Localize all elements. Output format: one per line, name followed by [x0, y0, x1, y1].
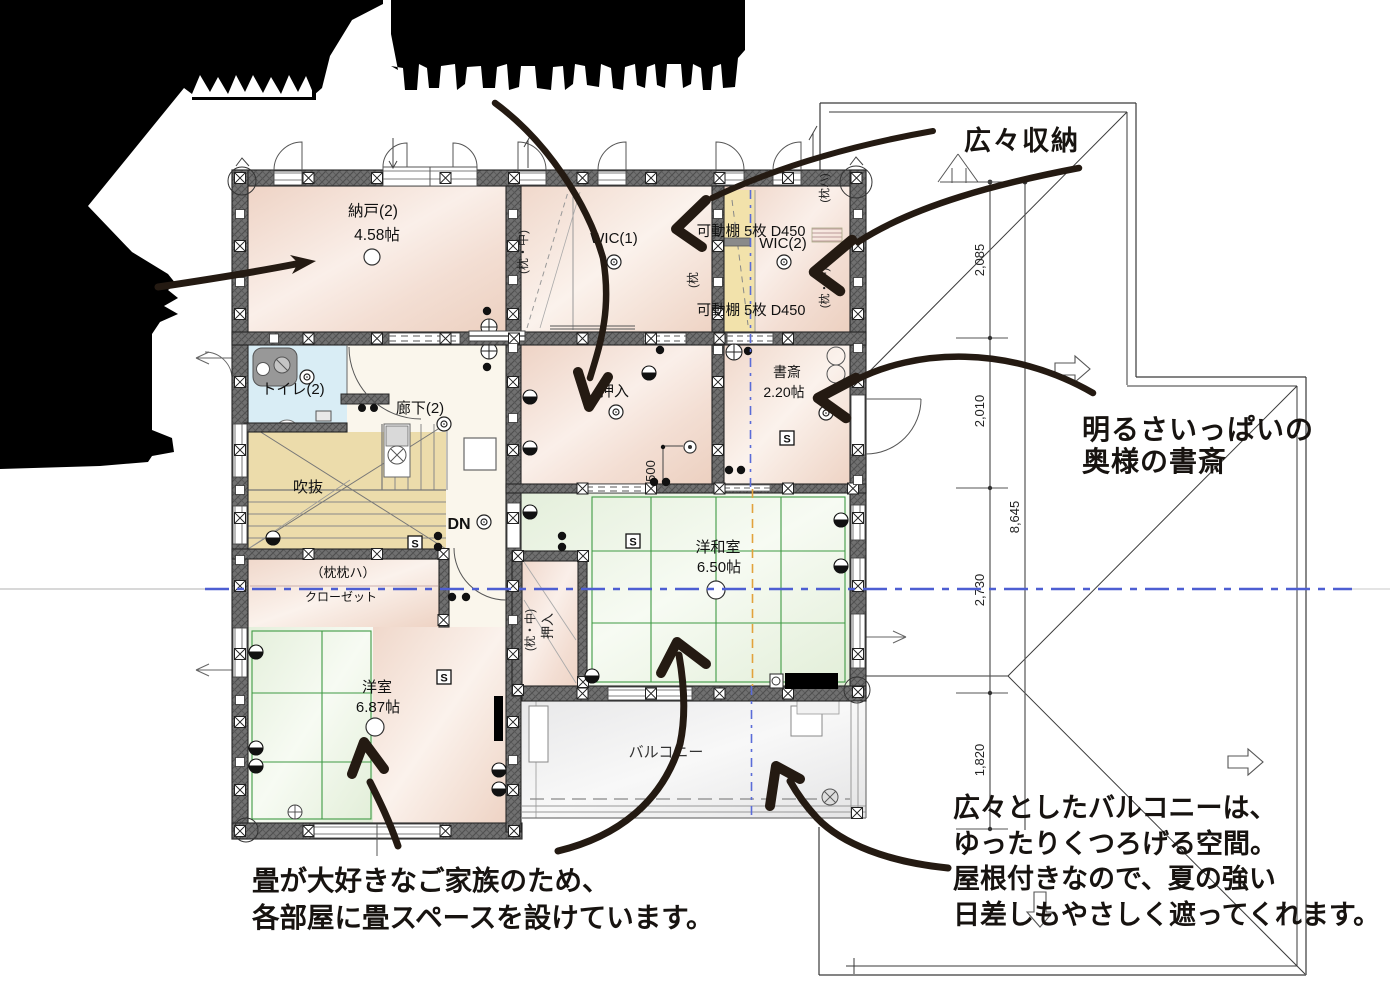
svg-text:(枕・中): (枕・中): [523, 609, 537, 651]
svg-text:（枕枕ハ）: （枕枕ハ）: [310, 565, 375, 580]
svg-text:屋根付きなので、夏の強い: 屋根付きなので、夏の強い: [953, 864, 1276, 894]
svg-text:畳が大好きなご家族のため、: 畳が大好きなご家族のため、: [252, 865, 610, 896]
svg-text:DN: DN: [447, 516, 470, 533]
svg-text:納戸(2): 納戸(2): [348, 202, 398, 220]
svg-text:日差しもやさしく遮ってくれます。: 日差しもやさしく遮ってくれます。: [953, 899, 1380, 930]
svg-text:明るさいっぱいの: 明るさいっぱいの: [1082, 414, 1314, 445]
svg-text:6.50帖: 6.50帖: [697, 559, 741, 576]
svg-text:トイレ(2): トイレ(2): [261, 381, 324, 398]
svg-text:6.87帖: 6.87帖: [356, 699, 400, 716]
svg-text:2,010: 2,010: [972, 395, 987, 428]
svg-text:各部屋に畳スペースを設けています。: 各部屋に畳スペースを設けています。: [251, 902, 713, 933]
svg-text:1,820: 1,820: [972, 744, 987, 777]
svg-text:バルコニー: バルコニー: [629, 744, 704, 761]
svg-text:ゆったりくつろげる空間。: ゆったりくつろげる空間。: [953, 828, 1277, 859]
svg-text:吹抜: 吹抜: [293, 479, 323, 496]
svg-text:(枕ハ): (枕ハ): [817, 173, 831, 202]
svg-text:2.20帖: 2.20帖: [763, 384, 804, 400]
svg-text:可動棚 5枚 D450: 可動棚 5枚 D450: [697, 223, 806, 240]
svg-text:広々としたバルコニーは、: 広々としたバルコニーは、: [953, 792, 1276, 823]
svg-text:2,085: 2,085: [972, 244, 987, 277]
svg-text:廊下(2): 廊下(2): [396, 400, 444, 417]
svg-text:可動棚 5枚 D450: 可動棚 5枚 D450: [697, 302, 806, 319]
svg-text:押入: 押入: [540, 613, 555, 639]
svg-text:8,645: 8,645: [1007, 501, 1022, 534]
svg-text:洋和室: 洋和室: [695, 539, 740, 556]
svg-text:広々収納: 広々収納: [964, 125, 1080, 156]
svg-text:(枕: (枕: [685, 272, 700, 288]
svg-text:(枕・中): (枕・中): [515, 230, 530, 274]
svg-text:洋室: 洋室: [362, 679, 392, 696]
svg-text:4.58帖: 4.58帖: [354, 226, 400, 244]
svg-text:クローゼット: クローゼット: [305, 590, 377, 604]
svg-text:奥様の書斎: 奥様の書斎: [1082, 445, 1227, 477]
svg-text:書斎: 書斎: [773, 364, 801, 380]
